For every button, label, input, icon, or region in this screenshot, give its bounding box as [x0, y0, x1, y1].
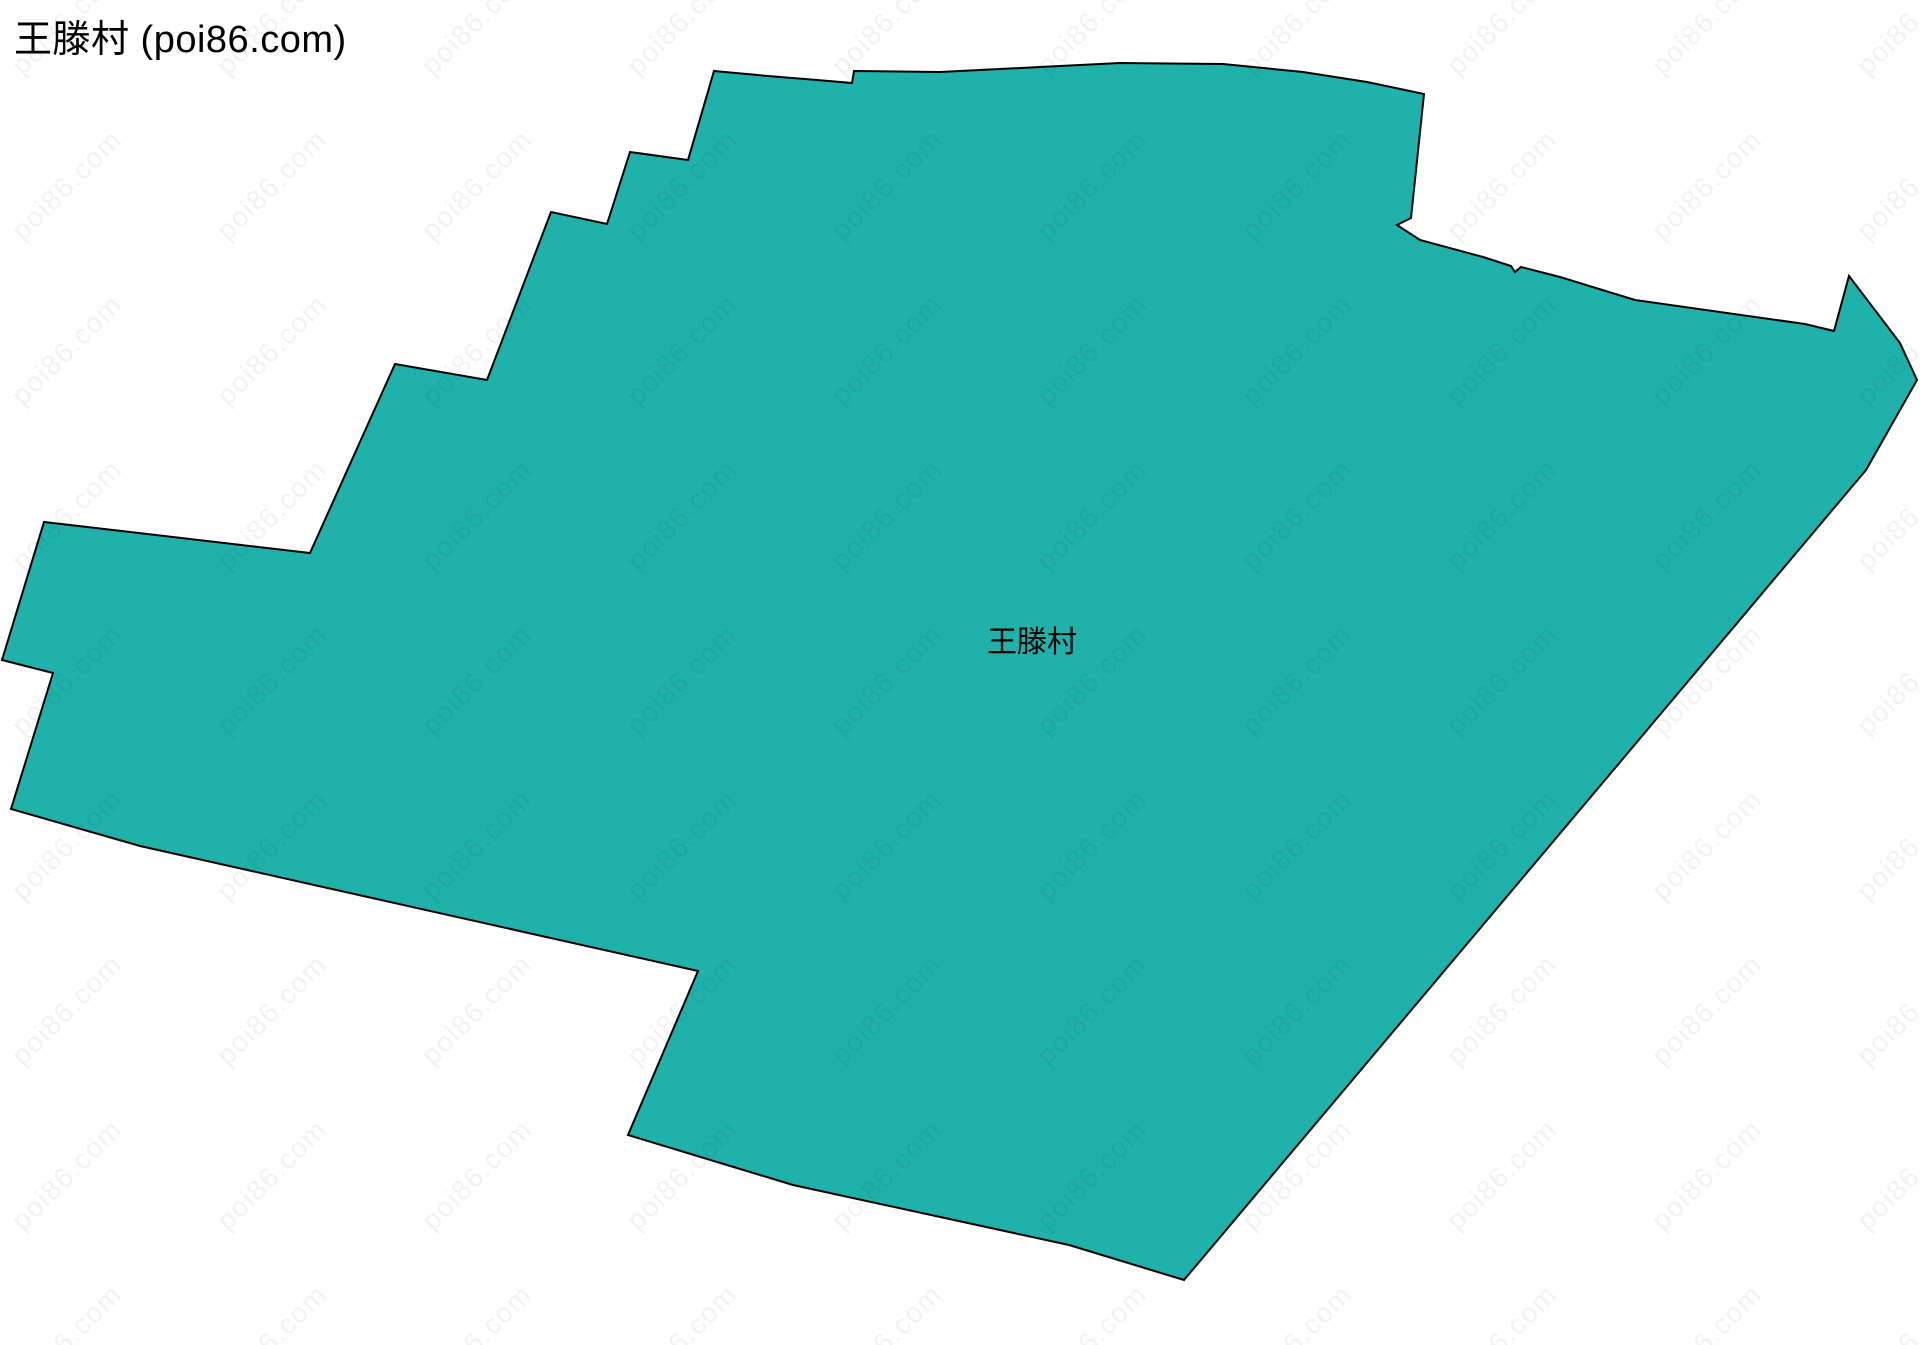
village-boundary-polygon: [2, 63, 1917, 1280]
page-title: 王滕村 (poi86.com): [14, 8, 347, 63]
map-canvas: 王滕村 (poi86.com) 王滕村 poi86.compoi86.compo…: [0, 0, 1920, 1345]
village-map: 王滕村: [0, 0, 1920, 1345]
region-label: 王滕村: [987, 626, 1077, 659]
